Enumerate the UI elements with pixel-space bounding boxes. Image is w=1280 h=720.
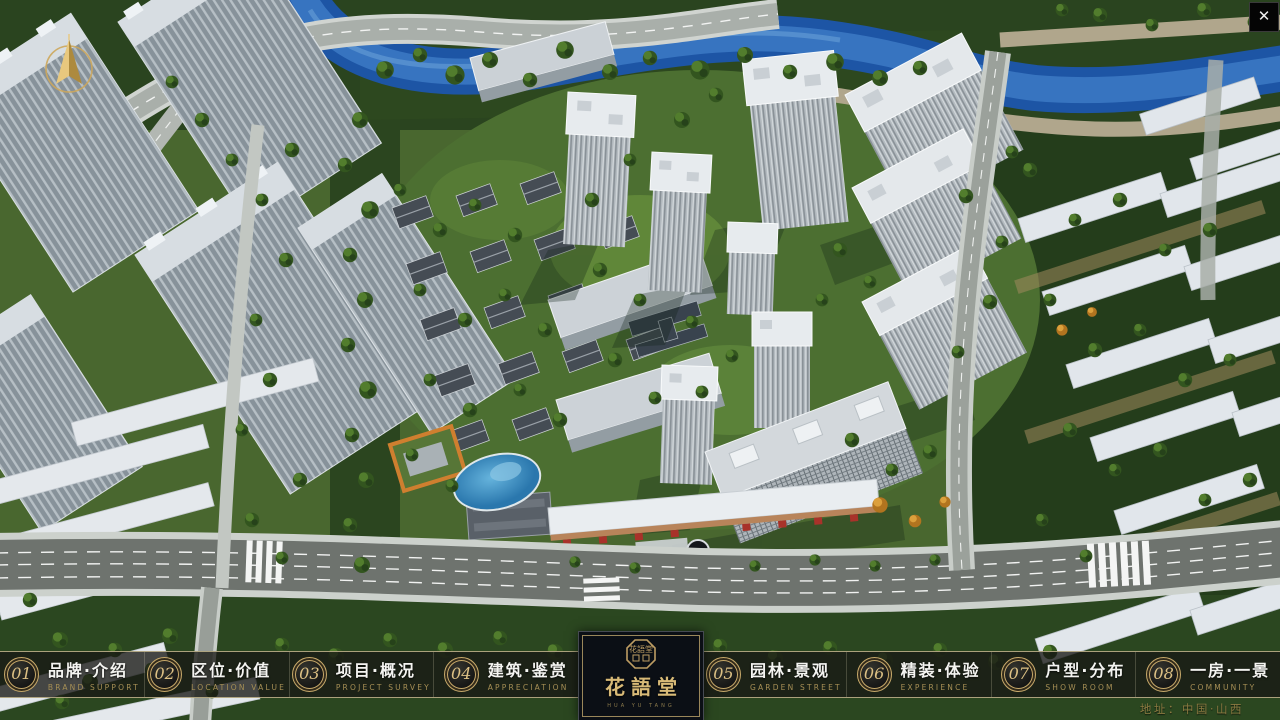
- brand-seal-icon: 花語堂: [626, 639, 656, 669]
- nav-label-zh: 园林·景观: [750, 657, 830, 681]
- nav-number-badge: 05: [706, 657, 741, 692]
- nav-number-badge: 02: [147, 657, 182, 692]
- nav-item-garden[interactable]: 05 园林·景观GARDEN STREET: [702, 652, 846, 697]
- nav-label-en: GARDEN STREET: [750, 683, 842, 692]
- nav-label-en: EXPERIENCE: [901, 683, 970, 692]
- nav-label-zh: 项目·概况: [336, 657, 416, 681]
- logo-panel[interactable]: 花語堂 花語堂 HUA YU TANG: [578, 631, 704, 720]
- nav-label-en: SHOW ROOM: [1045, 683, 1114, 692]
- project-address: 地址：中国·山西: [1140, 701, 1244, 717]
- nav-label-en: BRAND SUPPORT: [48, 683, 140, 692]
- nav-label-en: PROJECT SURVEY: [336, 683, 431, 692]
- presentation-screen: ✕ 01 品牌·介绍BRAND SUPPORT 02 区位·价值LOCATION…: [0, 0, 1280, 720]
- nav-group-right: 05 园林·景观GARDEN STREET 06 精装·体验EXPERIENCE…: [702, 652, 1280, 697]
- close-button[interactable]: ✕: [1249, 2, 1279, 32]
- nav-item-brand[interactable]: 01 品牌·介绍BRAND SUPPORT: [0, 652, 144, 697]
- nav-number-badge: 04: [444, 657, 479, 692]
- nav-label-zh: 建筑·鉴赏: [488, 657, 568, 681]
- nav-number: 03: [299, 664, 319, 683]
- nav-number: 07: [1009, 664, 1029, 683]
- nav-number: 08: [1153, 664, 1173, 683]
- nav-item-location[interactable]: 02 区位·价值LOCATION VALUE: [144, 652, 289, 697]
- nav-label-zh: 户型·分布: [1045, 657, 1125, 681]
- nav-number-badge: 03: [292, 657, 327, 692]
- brand-subtitle: HUA YU TANG: [607, 703, 674, 709]
- nav-item-floorplan[interactable]: 07 户型·分布SHOW ROOM: [991, 652, 1136, 697]
- nav-label-zh: 品牌·介绍: [48, 657, 128, 681]
- brand-name: 花語堂: [599, 671, 683, 700]
- nav-number-badge: 07: [1001, 657, 1036, 692]
- nav-item-interior[interactable]: 06 精装·体验EXPERIENCE: [846, 652, 991, 697]
- nav-item-community[interactable]: 08 一房·一景COMMUNITY: [1135, 652, 1280, 697]
- svg-text:花語堂: 花語堂: [629, 644, 653, 654]
- nav-group-left: 01 品牌·介绍BRAND SUPPORT 02 区位·价值LOCATION V…: [0, 652, 578, 697]
- nav-item-architecture[interactable]: 04 建筑·鉴赏APPRECIATION: [433, 652, 578, 697]
- nav-label-en: LOCATION VALUE: [191, 683, 286, 692]
- nav-number: 01: [11, 664, 31, 683]
- nav-label-zh: 一房·一景: [1190, 657, 1270, 681]
- nav-label-en: APPRECIATION: [488, 683, 569, 692]
- nav-number-badge: 08: [1146, 657, 1181, 692]
- nav-number-badge: 06: [857, 657, 892, 692]
- nav-number: 02: [154, 664, 174, 683]
- close-icon: ✕: [1258, 7, 1271, 25]
- nav-number: 04: [451, 664, 471, 683]
- nav-item-project[interactable]: 03 项目·概况PROJECT SURVEY: [289, 652, 434, 697]
- nav-number: 06: [864, 664, 884, 683]
- site-aerial-map[interactable]: [0, 0, 1280, 720]
- nav-label-en: COMMUNITY: [1190, 683, 1256, 692]
- nav-number-badge: 01: [4, 657, 39, 692]
- nav-label-zh: 区位·价值: [191, 657, 271, 681]
- nav-number: 05: [713, 664, 733, 683]
- nav-label-zh: 精装·体验: [901, 657, 981, 681]
